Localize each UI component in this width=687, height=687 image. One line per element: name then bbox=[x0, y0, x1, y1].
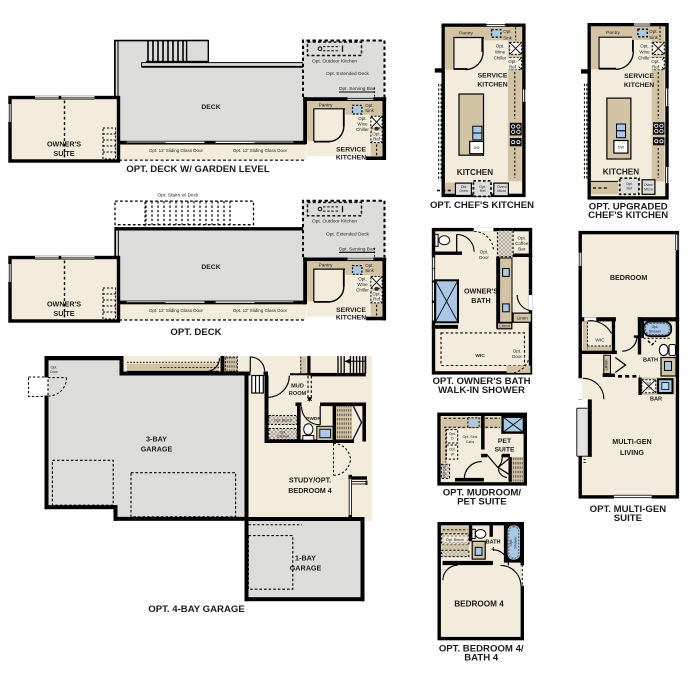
svg-text:BEDROOM: BEDROOM bbox=[610, 273, 648, 282]
svg-text:PET SUITE: PET SUITE bbox=[457, 496, 507, 507]
svg-text:Door: Door bbox=[512, 354, 522, 359]
svg-text:Ref: Ref bbox=[509, 65, 517, 70]
svg-text:Opt.: Opt. bbox=[479, 185, 486, 189]
svg-text:Door: Door bbox=[50, 370, 59, 374]
svg-text:ROOM: ROOM bbox=[289, 391, 307, 397]
svg-text:MUD: MUD bbox=[291, 384, 304, 390]
svg-text:Opt.: Opt. bbox=[508, 59, 517, 64]
svg-text:WIC: WIC bbox=[595, 338, 605, 344]
svg-text:Pantry: Pantry bbox=[606, 30, 620, 36]
svg-text:Bar: Bar bbox=[518, 247, 526, 252]
svg-text:OWNER'S: OWNER'S bbox=[464, 287, 498, 296]
svg-text:WIC: WIC bbox=[475, 353, 485, 359]
svg-text:DW: DW bbox=[474, 146, 481, 150]
svg-text:Chiller: Chiller bbox=[494, 55, 507, 60]
svg-text:Opt.: Opt. bbox=[649, 29, 658, 34]
svg-text:Cabs: Cabs bbox=[466, 440, 475, 444]
svg-text:DECK: DECK bbox=[201, 104, 220, 111]
svg-text:Micro: Micro bbox=[644, 187, 653, 191]
svg-text:OPT. CHEF'S KITCHEN: OPT. CHEF'S KITCHEN bbox=[430, 200, 534, 211]
svg-text:Opt.: Opt. bbox=[496, 43, 505, 48]
svg-text:Opt.: Opt. bbox=[503, 29, 512, 34]
svg-text:Wine: Wine bbox=[639, 49, 650, 54]
svg-text:KITCHEN: KITCHEN bbox=[457, 168, 493, 177]
svg-text:Opt.: Opt. bbox=[651, 59, 660, 64]
svg-text:Linen: Linen bbox=[603, 359, 608, 371]
svg-text:WALK-IN SHOWER: WALK-IN SHOWER bbox=[438, 385, 525, 396]
svg-text:Sink: Sink bbox=[649, 35, 659, 40]
svg-text:LIVING: LIVING bbox=[620, 448, 644, 457]
svg-text:STUDY/OPT.: STUDY/OPT. bbox=[289, 476, 331, 485]
svg-text:D: D bbox=[451, 437, 454, 441]
svg-text:DECK: DECK bbox=[201, 264, 220, 271]
svg-text:3-BAY: 3-BAY bbox=[146, 435, 167, 444]
svg-text:GARAGE: GARAGE bbox=[290, 564, 322, 573]
svg-text:Linen: Linen bbox=[517, 316, 529, 321]
svg-text:Dbl: Dbl bbox=[461, 185, 467, 189]
svg-text:BATH: BATH bbox=[471, 296, 490, 305]
svg-text:Chiller: Chiller bbox=[638, 55, 651, 60]
svg-text:SERVICE: SERVICE bbox=[478, 73, 508, 80]
svg-text:Opt. 12' Sliding Glass Door: Opt. 12' Sliding Glass Door bbox=[149, 308, 204, 313]
svg-text:GARAGE: GARAGE bbox=[141, 445, 173, 454]
svg-text:Opt.: Opt. bbox=[626, 182, 633, 186]
svg-text:Opt.: Opt. bbox=[518, 236, 527, 241]
svg-text:Ref: Ref bbox=[646, 386, 652, 390]
svg-text:Opt.: Opt. bbox=[652, 325, 659, 329]
svg-text:DW: DW bbox=[618, 146, 625, 150]
svg-text:BATH 4: BATH 4 bbox=[464, 653, 499, 664]
svg-text:Opt.: Opt. bbox=[513, 349, 522, 354]
svg-text:MULTI-GEN: MULTI-GEN bbox=[612, 437, 651, 446]
svg-text:Opt. Stairs w/ Deck: Opt. Stairs w/ Deck bbox=[157, 193, 199, 199]
svg-text:OPT. 4-BAY GARAGE: OPT. 4-BAY GARAGE bbox=[148, 604, 245, 615]
svg-text:OPT. DECK W/ GARDEN LEVEL: OPT. DECK W/ GARDEN LEVEL bbox=[126, 164, 270, 175]
svg-text:Cabinet: Cabinet bbox=[277, 435, 289, 439]
svg-text:W: W bbox=[451, 452, 455, 456]
svg-text:Shower: Shower bbox=[649, 330, 662, 334]
svg-text:Opt.: Opt. bbox=[449, 448, 456, 452]
svg-text:Opt.: Opt. bbox=[640, 43, 649, 48]
svg-text:1-BAY: 1-BAY bbox=[295, 554, 316, 563]
svg-text:SERVICE: SERVICE bbox=[624, 73, 654, 80]
svg-text:Ref: Ref bbox=[480, 189, 486, 193]
svg-text:BAR: BAR bbox=[650, 397, 662, 403]
svg-text:SUITE: SUITE bbox=[614, 513, 643, 524]
svg-text:Shower: Shower bbox=[514, 536, 518, 549]
svg-text:Opt. Bench: Opt. Bench bbox=[446, 538, 464, 542]
svg-text:CHEF'S KITCHEN: CHEF'S KITCHEN bbox=[588, 210, 668, 221]
svg-text:Ref: Ref bbox=[652, 65, 660, 70]
svg-text:SUITE: SUITE bbox=[494, 447, 514, 454]
svg-text:Wine: Wine bbox=[495, 49, 506, 54]
svg-text:Micro: Micro bbox=[497, 189, 506, 193]
svg-text:Pantry: Pantry bbox=[459, 30, 473, 36]
svg-text:Ref: Ref bbox=[627, 187, 633, 191]
svg-text:Opt. 12' Sliding Glass Door: Opt. 12' Sliding Glass Door bbox=[149, 148, 204, 153]
svg-text:Opt. 12' Sliding Glass Door: Opt. 12' Sliding Glass Door bbox=[233, 148, 288, 153]
svg-text:Oven/: Oven/ bbox=[644, 183, 654, 187]
svg-text:Opt.: Opt. bbox=[509, 539, 513, 546]
svg-text:Sink: Sink bbox=[503, 35, 513, 40]
svg-text:KITCHEN: KITCHEN bbox=[624, 82, 654, 89]
svg-text:OPT. DECK: OPT. DECK bbox=[170, 327, 221, 338]
svg-text:Opt. Bench: Opt. Bench bbox=[274, 419, 292, 423]
svg-text:Opt Cab: Opt Cab bbox=[443, 465, 447, 478]
svg-text:Opt.: Opt. bbox=[480, 250, 489, 255]
svg-text:Opt.: Opt. bbox=[51, 366, 58, 370]
svg-text:Coffee: Coffee bbox=[515, 241, 529, 246]
svg-text:BATH: BATH bbox=[485, 540, 500, 546]
svg-text:Oven: Oven bbox=[459, 189, 468, 193]
svg-text:KITCHEN: KITCHEN bbox=[477, 82, 507, 89]
svg-text:PET: PET bbox=[498, 438, 512, 445]
svg-text:Door: Door bbox=[479, 255, 489, 260]
svg-text:BEDROOM 4: BEDROOM 4 bbox=[288, 486, 332, 495]
svg-text:KITCHEN: KITCHEN bbox=[603, 168, 639, 177]
svg-text:Opt. Sink: Opt. Sink bbox=[463, 435, 478, 439]
svg-text:Opt.: Opt. bbox=[449, 432, 456, 436]
svg-text:Oven/: Oven/ bbox=[497, 185, 507, 189]
svg-text:Linen: Linen bbox=[499, 324, 511, 329]
svg-text:Opt. 12' Sliding Glass Door: Opt. 12' Sliding Glass Door bbox=[233, 308, 288, 313]
svg-text:BATH: BATH bbox=[643, 358, 658, 364]
svg-text:Opt.: Opt. bbox=[645, 382, 652, 386]
svg-text:BEDROOM 4: BEDROOM 4 bbox=[454, 600, 504, 609]
